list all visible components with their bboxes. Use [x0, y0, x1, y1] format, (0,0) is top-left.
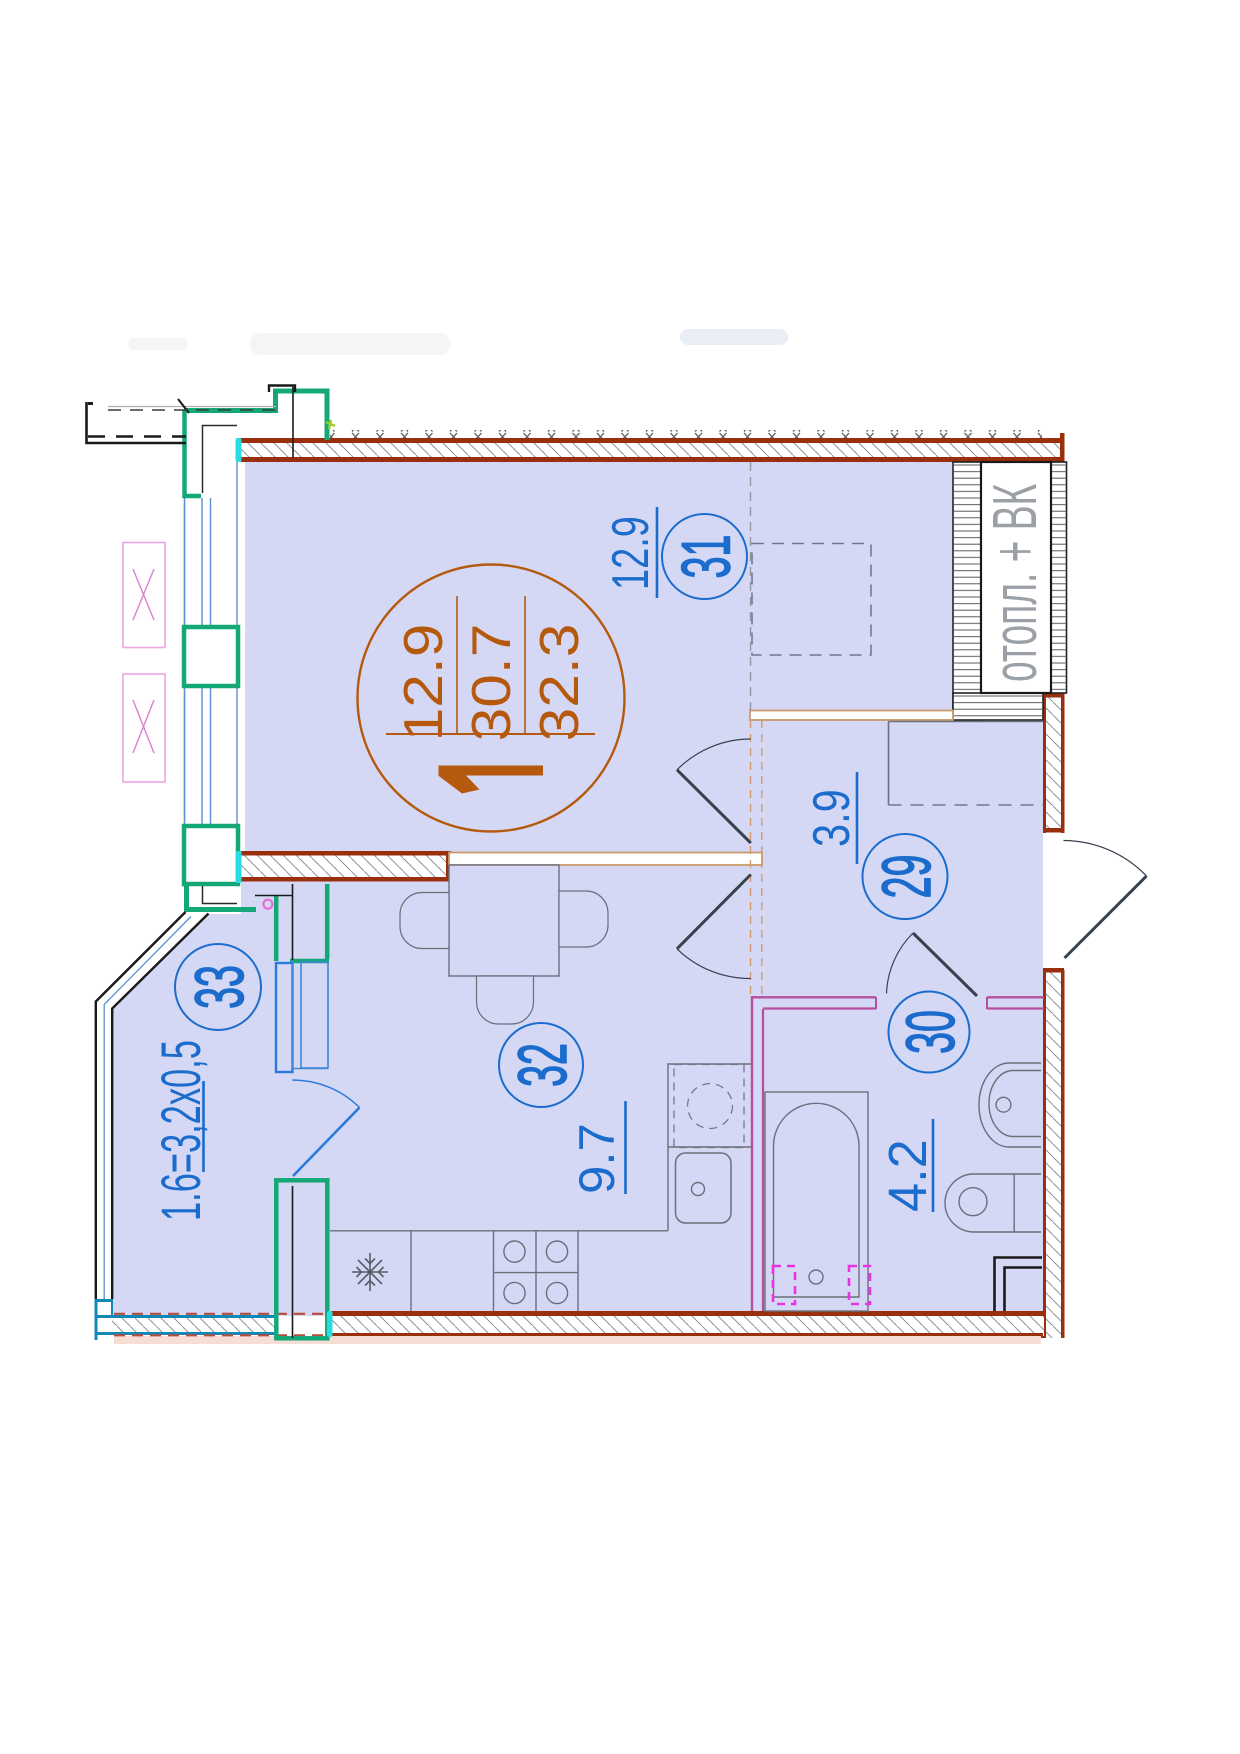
svg-text:9.7: 9.7 [568, 1123, 624, 1194]
svg-text:33: 33 [180, 965, 257, 1009]
svg-text:30.7: 30.7 [461, 624, 522, 742]
svg-text:12.9: 12.9 [393, 624, 454, 742]
svg-text:29: 29 [867, 855, 944, 899]
svg-text:31: 31 [667, 535, 744, 579]
svg-text:4.2: 4.2 [878, 1139, 938, 1212]
svg-text:3.9: 3.9 [802, 789, 861, 847]
svg-text:30: 30 [891, 1010, 968, 1054]
svg-text:12.9: 12.9 [601, 516, 659, 590]
svg-text:отопл. + ВК: отопл. + ВК [980, 484, 1049, 682]
svg-text:32.3: 32.3 [529, 624, 590, 742]
svg-text:32: 32 [503, 1043, 580, 1087]
